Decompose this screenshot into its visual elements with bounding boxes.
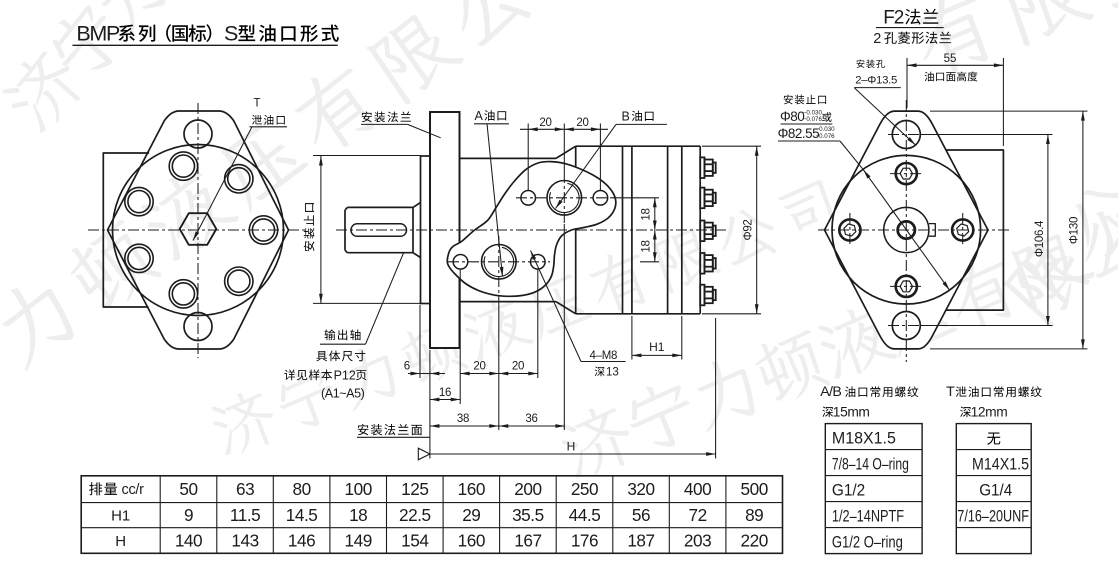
- svg-text:72: 72: [688, 505, 706, 525]
- svg-text:1/2–14NPTF: 1/2–14NPTF: [832, 507, 904, 526]
- svg-text:320: 320: [627, 479, 654, 499]
- svg-text:H: H: [115, 533, 126, 550]
- svg-text:80: 80: [292, 479, 310, 499]
- svg-text:35.5: 35.5: [512, 505, 544, 525]
- svg-text:4–M8: 4–M8: [590, 350, 618, 362]
- svg-text:100: 100: [345, 479, 372, 499]
- svg-text:15mm: 15mm: [833, 404, 870, 419]
- svg-text:H: H: [567, 440, 576, 454]
- svg-text:146: 146: [288, 531, 315, 551]
- svg-text:160: 160: [458, 531, 485, 551]
- svg-text:20: 20: [512, 361, 524, 373]
- svg-text:500: 500: [741, 479, 768, 499]
- svg-text:H1: H1: [111, 507, 130, 524]
- svg-text:18: 18: [641, 208, 653, 220]
- svg-text:56: 56: [632, 505, 650, 525]
- svg-text:63: 63: [236, 479, 254, 499]
- svg-text:16: 16: [439, 387, 451, 399]
- svg-text:P12: P12: [334, 368, 356, 382]
- svg-text:Φ130: Φ130: [1069, 217, 1081, 244]
- svg-text:20: 20: [576, 117, 588, 129]
- svg-text:220: 220: [741, 531, 768, 551]
- svg-text:140: 140: [175, 531, 202, 551]
- svg-text:176: 176: [571, 531, 598, 551]
- svg-text:18: 18: [641, 240, 653, 252]
- svg-text:A: A: [475, 109, 484, 123]
- svg-text:154: 154: [401, 531, 429, 551]
- svg-text:−0.076: −0.076: [803, 116, 823, 123]
- svg-text:187: 187: [627, 531, 654, 551]
- svg-text:29: 29: [462, 505, 480, 525]
- svg-text:cc/r: cc/r: [122, 482, 145, 498]
- svg-text:12mm: 12mm: [971, 404, 1008, 419]
- svg-text:T: T: [254, 98, 261, 110]
- svg-text:11.5: 11.5: [230, 505, 260, 525]
- svg-text:400: 400: [684, 479, 711, 499]
- svg-text:18: 18: [349, 505, 367, 525]
- svg-text:55: 55: [944, 53, 957, 65]
- svg-text:G1/4: G1/4: [979, 481, 1012, 500]
- svg-text:14.5: 14.5: [286, 505, 318, 525]
- svg-text:20: 20: [473, 361, 485, 373]
- svg-text:Φ106.4: Φ106.4: [1034, 220, 1046, 257]
- svg-text:200: 200: [514, 479, 541, 499]
- svg-text:125: 125: [401, 479, 428, 499]
- svg-text:B: B: [622, 109, 630, 123]
- svg-text:T: T: [946, 384, 955, 400]
- svg-text:Φ80: Φ80: [780, 109, 804, 124]
- svg-text:7/8–14 O–ring: 7/8–14 O–ring: [832, 455, 909, 474]
- svg-text:M18X1.5: M18X1.5: [832, 429, 896, 448]
- svg-text:9: 9: [184, 505, 193, 525]
- svg-text:167: 167: [514, 531, 541, 551]
- svg-text:149: 149: [345, 531, 372, 551]
- svg-text:Φ92: Φ92: [743, 219, 755, 240]
- svg-text:Φ82.55: Φ82.55: [778, 126, 820, 141]
- svg-text:89: 89: [745, 505, 763, 525]
- svg-text:BMP: BMP: [76, 22, 120, 46]
- svg-text:M14X1.5: M14X1.5: [972, 455, 1029, 474]
- svg-text:20: 20: [539, 117, 551, 129]
- svg-text:A/B: A/B: [820, 384, 841, 400]
- svg-text:38: 38: [457, 413, 469, 425]
- svg-text:2: 2: [873, 31, 881, 47]
- svg-text:F2: F2: [883, 7, 903, 28]
- svg-text:2–Φ13.5: 2–Φ13.5: [855, 74, 897, 86]
- svg-text:(A1~A5): (A1~A5): [321, 387, 365, 401]
- svg-text:G1/2: G1/2: [832, 481, 865, 500]
- svg-text:36: 36: [525, 413, 537, 425]
- svg-text:143: 143: [231, 531, 258, 551]
- svg-text:S: S: [224, 22, 238, 46]
- svg-text:250: 250: [571, 479, 598, 499]
- svg-text:G1/2 O–ring: G1/2 O–ring: [832, 533, 903, 552]
- svg-text:−0.076: −0.076: [816, 133, 836, 140]
- svg-text:22.5: 22.5: [399, 505, 431, 525]
- svg-text:203: 203: [684, 531, 711, 551]
- svg-text:44.5: 44.5: [569, 505, 601, 525]
- svg-text:6: 6: [404, 361, 410, 373]
- svg-text:H1: H1: [649, 340, 665, 354]
- svg-text:7/16–20UNF: 7/16–20UNF: [957, 507, 1029, 526]
- svg-text:160: 160: [458, 479, 485, 499]
- svg-text:13: 13: [606, 367, 619, 379]
- svg-text:50: 50: [179, 479, 197, 499]
